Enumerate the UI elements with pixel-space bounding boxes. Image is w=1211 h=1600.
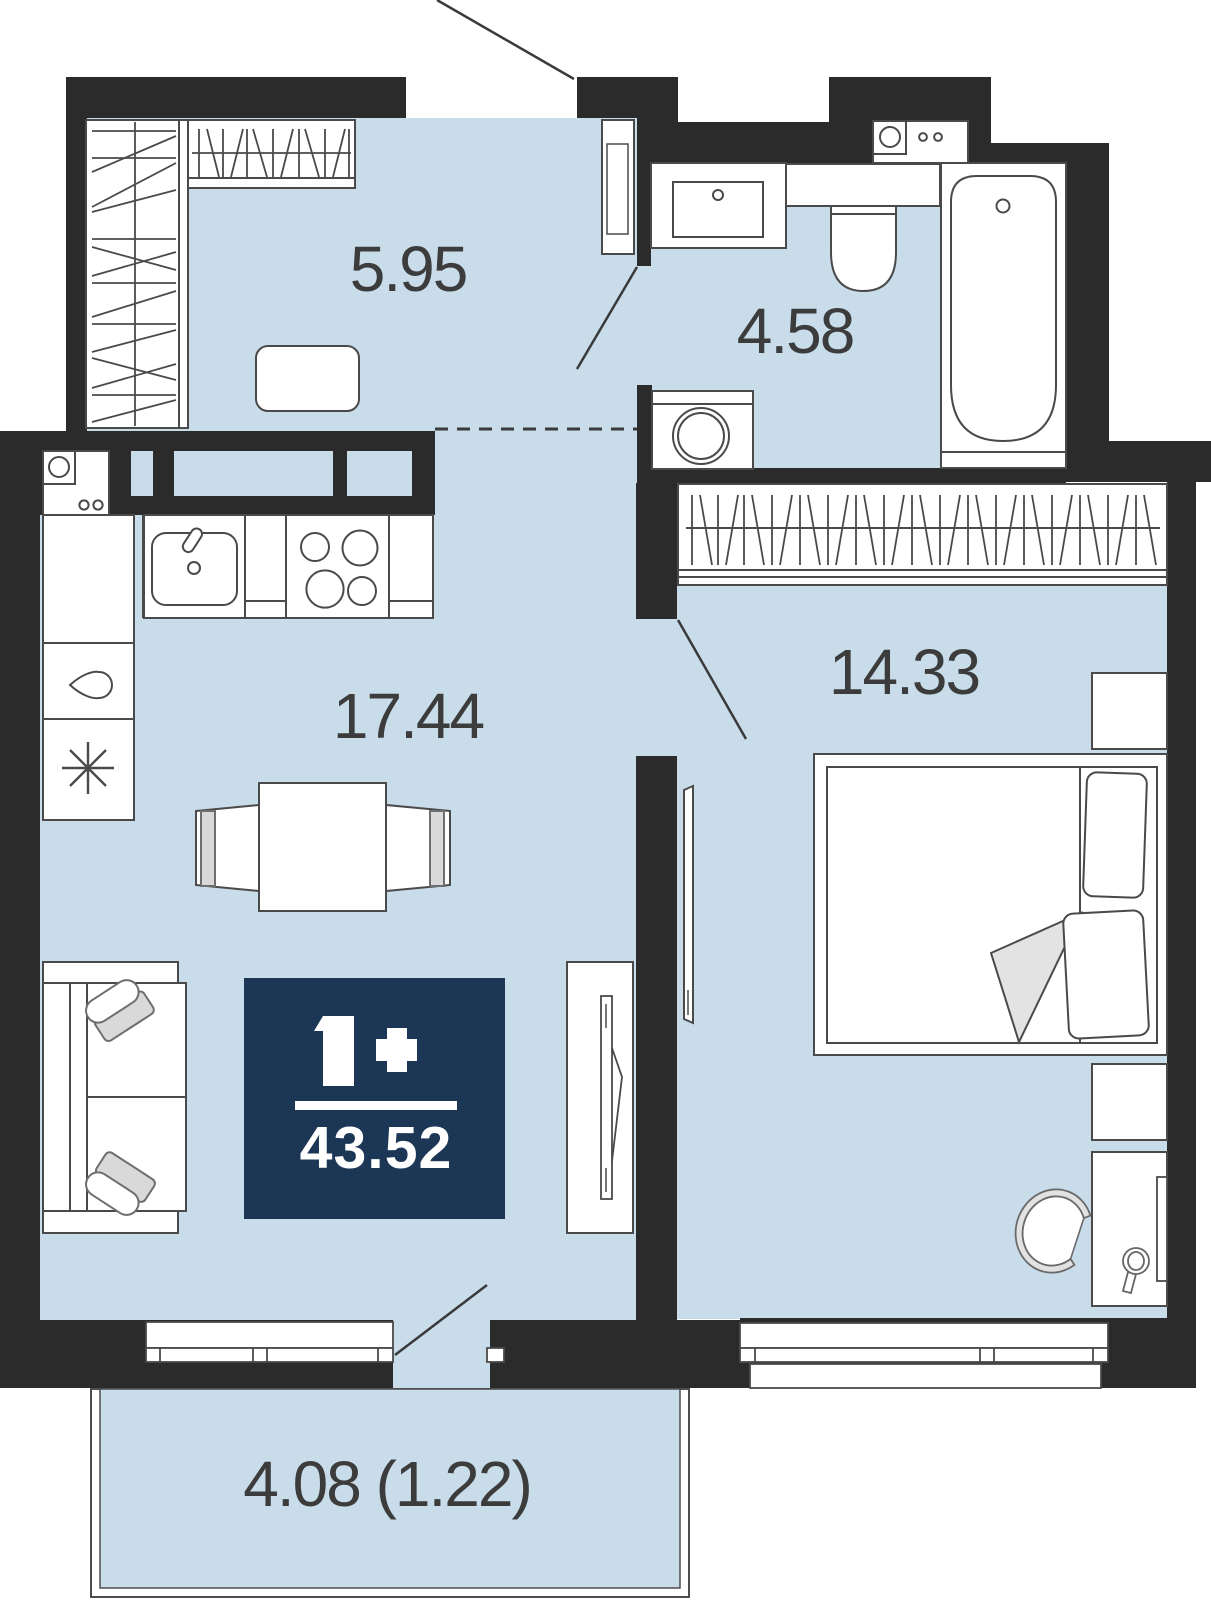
svg-text:17.44: 17.44 (333, 680, 484, 752)
svg-text:5.95: 5.95 (350, 233, 467, 305)
svg-text:4.58: 4.58 (737, 295, 854, 367)
svg-text:4.08 (1.22): 4.08 (1.22) (243, 1448, 531, 1520)
svg-text:43.52: 43.52 (300, 1115, 453, 1181)
svg-text:14.33: 14.33 (829, 636, 979, 708)
